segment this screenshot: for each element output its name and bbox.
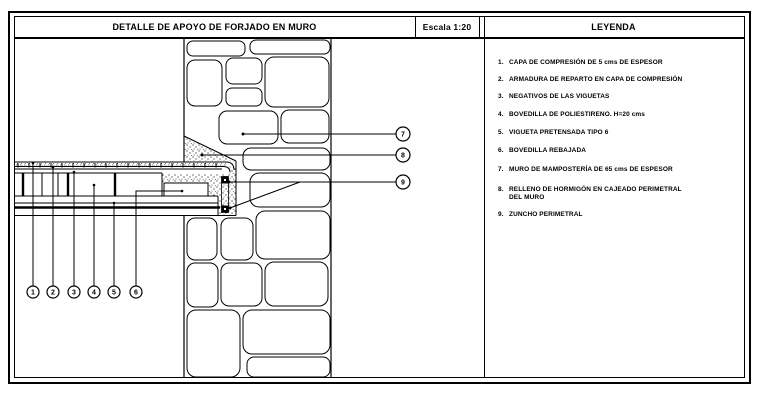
callout-9: 9 bbox=[401, 180, 405, 187]
lowered-bovedilla bbox=[164, 183, 208, 196]
callout-7: 7 bbox=[401, 132, 405, 139]
leader-end-dots bbox=[32, 133, 245, 210]
drawing-sheet: DETALLE DE APOYO DE FORJADO EN MURO Esca… bbox=[0, 0, 760, 401]
callout-5: 5 bbox=[112, 290, 116, 297]
callout-8: 8 bbox=[401, 153, 405, 160]
callout-6: 6 bbox=[134, 290, 138, 297]
detail-drawing: 1 2 3 4 5 6 7 8 9 bbox=[0, 0, 760, 401]
callout-2: 2 bbox=[51, 290, 55, 297]
callout-3: 3 bbox=[72, 290, 76, 297]
callout-1: 1 bbox=[31, 290, 35, 297]
callout-4: 4 bbox=[92, 290, 96, 297]
